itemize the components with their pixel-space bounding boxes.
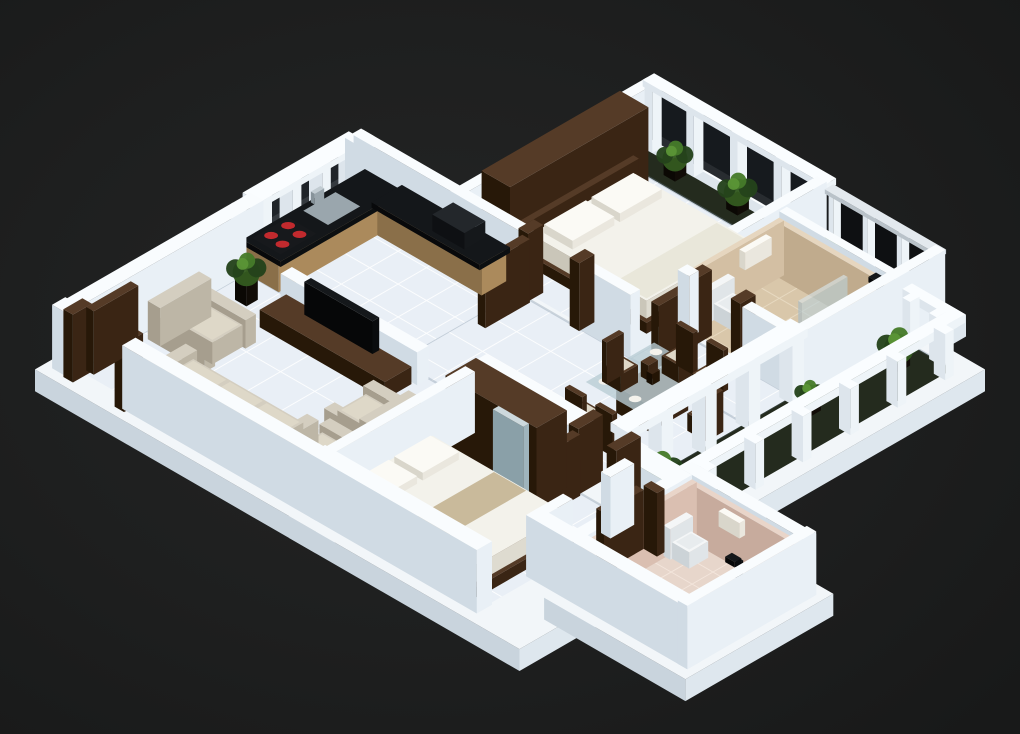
vestibule-door-post xyxy=(644,481,665,557)
master-door-post xyxy=(570,249,595,331)
hob-burner xyxy=(281,222,295,229)
place-setting xyxy=(629,396,642,403)
balcony3-post xyxy=(839,378,859,436)
place-setting xyxy=(650,349,663,356)
balcony3-post xyxy=(792,405,812,463)
balcony3-post xyxy=(744,432,764,490)
wall-bedroom2-east-a xyxy=(601,458,634,539)
hob-burner xyxy=(293,231,307,238)
hob-burner xyxy=(264,232,278,239)
hob-burner xyxy=(276,241,290,248)
balcony3-post xyxy=(934,323,954,381)
floor-plan-3d-render xyxy=(0,0,1020,734)
balcony3-post xyxy=(886,350,906,408)
floor-plan-screenshot xyxy=(0,0,1020,734)
